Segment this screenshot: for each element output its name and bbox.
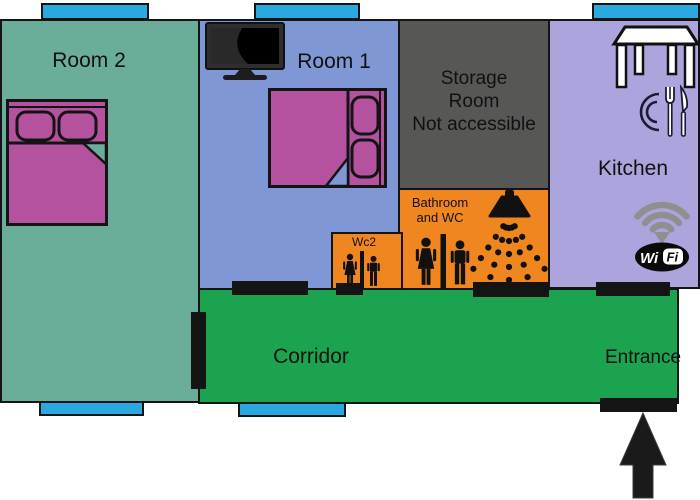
double-bed-icon [6,99,108,226]
storage-label-line: Room [398,90,550,113]
room1-label: Room 1 [274,50,394,74]
up-arrow-icon [608,410,678,500]
bathroom-label: Bathroom and WC [400,195,480,225]
window-bottom-room2 [39,401,144,416]
bathroom-label-line: and WC [400,210,480,225]
corridor-label: Corridor [251,345,371,369]
entrance-label: Entrance [584,346,700,369]
room2-label: Room 2 [29,49,149,73]
storage-label-line: Storage [398,67,550,90]
door-room1 [232,281,308,295]
bathroom-label-line: Bathroom [400,195,480,210]
window-top-kitchen [592,3,700,20]
man-woman-icon [412,234,474,291]
window-top-room1 [254,3,360,20]
storage-label-line: Not accessible [398,113,550,136]
window-bottom-corridor [238,402,346,417]
floor-plan: Wi Fi [0,0,700,500]
shower-icon [468,188,548,295]
plate-cutlery-icon [630,83,692,141]
wc2-label: Wc2 [331,235,397,249]
window-top-room2 [41,3,149,20]
wifi-logo-wi: Wi [640,250,659,267]
wifi-logo-fi: Fi [667,250,679,265]
door-room2 [191,312,206,389]
door-kitchen [596,282,670,296]
kitchen-label: Kitchen [573,157,693,181]
man-woman-icon [340,251,386,290]
double-bed-icon [268,88,387,188]
dining-table-icon [612,24,700,90]
storage-label: Storage Room Not accessible [398,67,550,136]
wifi-icon: Wi Fi [629,191,693,275]
